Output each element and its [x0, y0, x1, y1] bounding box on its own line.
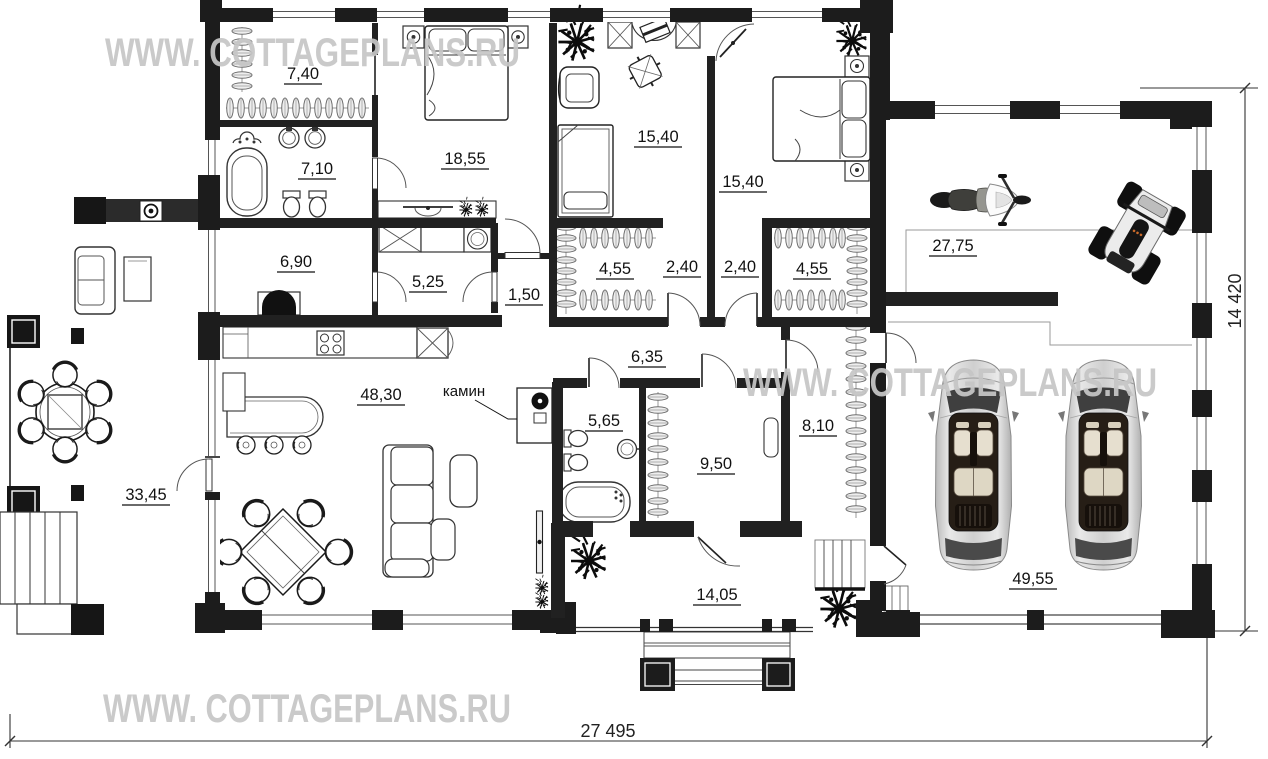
svg-text:WWW. COTTAGEPLANS.RU: WWW. COTTAGEPLANS.RU: [103, 687, 511, 731]
svg-text:8,10: 8,10: [802, 417, 834, 435]
svg-text:2,40: 2,40: [666, 258, 698, 276]
svg-text:27 495: 27 495: [580, 721, 635, 741]
svg-text:5,65: 5,65: [588, 412, 620, 430]
svg-text:6,35: 6,35: [631, 348, 663, 366]
svg-text:камин: камин: [443, 383, 485, 400]
svg-text:15,40: 15,40: [637, 128, 678, 146]
svg-text:7,10: 7,10: [301, 160, 333, 178]
svg-text:18,55: 18,55: [444, 150, 485, 168]
svg-text:49,55: 49,55: [1012, 570, 1053, 588]
svg-text:WWW. COTTAGEPLANS.RU: WWW. COTTAGEPLANS.RU: [105, 31, 520, 75]
svg-text:15,40: 15,40: [722, 173, 763, 191]
svg-text:1,50: 1,50: [508, 286, 540, 304]
svg-text:2,40: 2,40: [724, 258, 756, 276]
svg-text:14,05: 14,05: [696, 586, 737, 604]
svg-text:33,45: 33,45: [125, 486, 166, 504]
svg-text:6,90: 6,90: [280, 253, 312, 271]
svg-text:5,25: 5,25: [412, 273, 444, 291]
svg-text:14 420: 14 420: [1225, 273, 1245, 328]
svg-text:4,55: 4,55: [599, 260, 631, 278]
svg-text:9,50: 9,50: [700, 455, 732, 473]
svg-text:WWW. COTTAGEPLANS.RU: WWW. COTTAGEPLANS.RU: [743, 361, 1157, 405]
svg-text:48,30: 48,30: [360, 386, 401, 404]
svg-text:27,75: 27,75: [932, 237, 973, 255]
svg-text:4,55: 4,55: [796, 260, 828, 278]
